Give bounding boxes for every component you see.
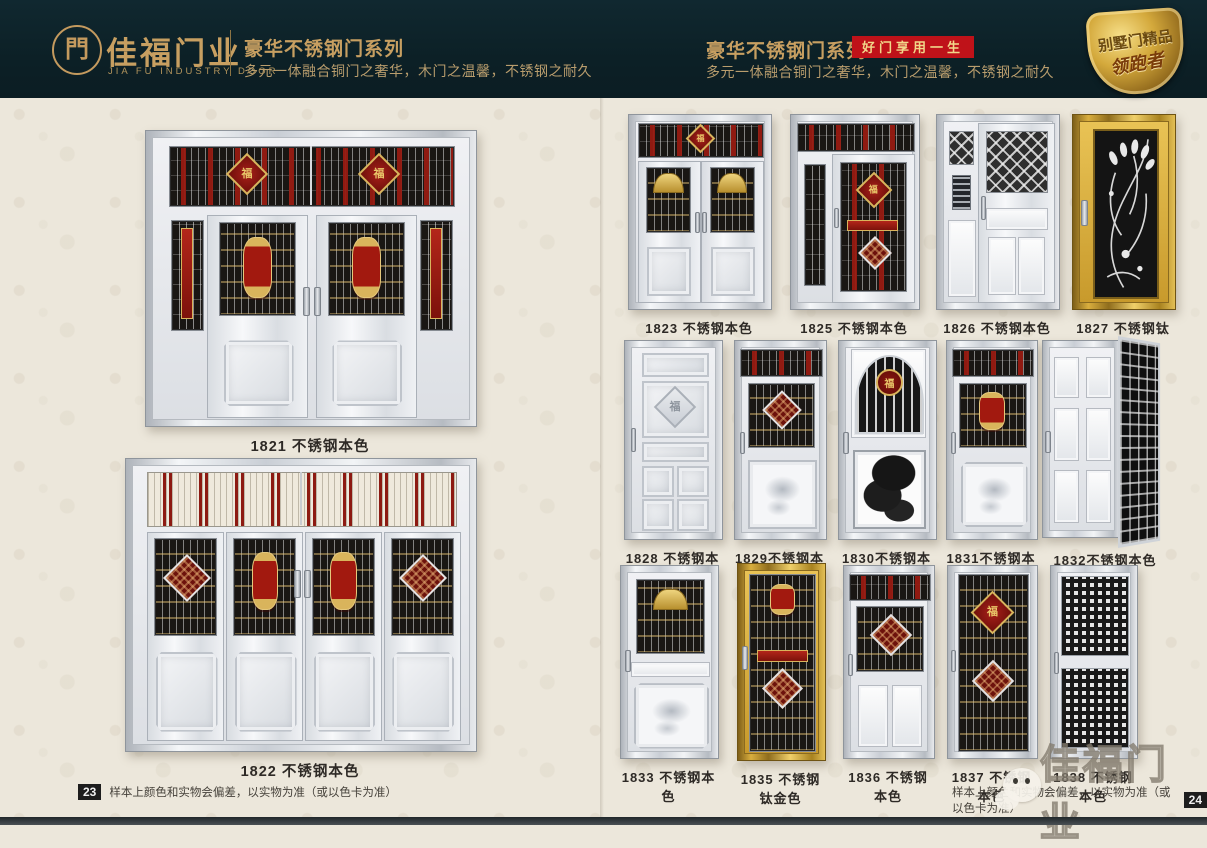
- page-crease: [600, 98, 604, 817]
- emboss-panel: [642, 353, 708, 377]
- door-handle: [314, 287, 321, 316]
- emboss-panel: [156, 652, 218, 732]
- door-1833-figure: 1833 不锈钢本色: [620, 565, 717, 805]
- door-handle: [1045, 431, 1051, 453]
- series-title-left: 豪华不锈钢门系列: [244, 34, 404, 61]
- ink-art-panel: [853, 450, 927, 529]
- page-number: 23: [78, 784, 101, 800]
- door-label: 1821 不锈钢本色: [145, 435, 475, 456]
- door-panel: [1086, 470, 1111, 523]
- door-1829-image: [734, 340, 827, 540]
- lantern-motif: [352, 237, 380, 298]
- lantern-motif: [979, 392, 1004, 430]
- door-handle: [625, 650, 630, 671]
- brand-watermark: 佳福门业: [995, 732, 1207, 848]
- lower-panel: [948, 220, 976, 298]
- lantern-motif: [330, 552, 357, 609]
- door-1828-image: 福: [624, 340, 723, 540]
- door-1829-figure: 1829不锈钢本色: [734, 340, 825, 586]
- door-handle: [740, 432, 745, 454]
- door-1825-figure: 福 1825 不锈钢本色: [790, 114, 918, 337]
- door-1831-image: [946, 340, 1038, 540]
- wechat-watermark-icon: [995, 768, 1040, 812]
- door-1836-figure: 1836 不锈钢本色: [843, 565, 933, 805]
- door-1830-figure: 福 1830不锈钢本色: [838, 340, 935, 586]
- door-1831-figure: 1831不锈钢本色: [946, 340, 1036, 586]
- door-handle: [1054, 652, 1059, 673]
- mid-band: [986, 208, 1048, 229]
- mid-band: [631, 662, 711, 677]
- award-shield-icon: 别墅门精品 领跑者: [1085, 7, 1187, 97]
- mesh-panel: [1061, 576, 1128, 657]
- door-handle: [742, 646, 748, 670]
- emboss-square: [642, 466, 673, 498]
- door-1837-image: 福: [947, 565, 1038, 759]
- door-panel: [1054, 408, 1079, 461]
- emboss-band: [642, 442, 708, 462]
- door-1821-image: 福 福: [145, 130, 477, 427]
- door-handle: [303, 287, 310, 316]
- door-1832-figure: 1832不锈钢本色: [1042, 336, 1168, 569]
- tassel-motif: [181, 228, 193, 319]
- door-1827-image: [1072, 114, 1176, 310]
- door-1835-figure: 1835 不锈钢钛金色: [737, 563, 824, 807]
- door-handle: [848, 654, 853, 675]
- lattice-window: [986, 131, 1048, 193]
- tassel-motif: [430, 228, 442, 319]
- watermark-text: 佳福门业: [1040, 732, 1207, 848]
- emboss-panel: [647, 247, 691, 296]
- door-handle: [702, 212, 707, 233]
- door-1832-image: [1042, 336, 1168, 542]
- door-1838-image: [1050, 565, 1138, 759]
- door-panel: [1086, 357, 1111, 398]
- side-window: [804, 164, 826, 286]
- door-panel: [1086, 408, 1111, 461]
- emboss-square: [677, 466, 708, 498]
- door-label: 1833 不锈钢本色: [620, 767, 717, 805]
- transom-grille: [740, 349, 822, 377]
- series-tagline-left: 多元一体融合铜门之奢华，木门之温馨，不锈钢之耐久: [244, 61, 592, 81]
- header-bar: 門 佳福门业 JIA FU INDUSTRY DOOR 豪华不锈钢门系列 多元一…: [0, 0, 1207, 98]
- door-1821-figure: 福 福 1821 不锈钢本色: [145, 130, 475, 456]
- lower-panel: [988, 237, 1016, 295]
- door-1827-figure: 1827 不锈钢钛金色: [1072, 114, 1174, 356]
- catalog-spread: 門 佳福门业 JIA FU INDUSTRY DOOR 豪华不锈钢门系列 多元一…: [0, 0, 1207, 825]
- door-1825-image: 福: [790, 114, 920, 310]
- door-handle: [695, 212, 700, 233]
- door-label: 1823 不锈钢本色: [628, 318, 770, 337]
- door-1826-figure: 1826 不锈钢本色: [936, 114, 1058, 337]
- peacock-scroll-art: [1095, 131, 1156, 298]
- door-handle: [951, 650, 956, 671]
- red-bar-motif: [757, 650, 808, 662]
- door-handle: [834, 208, 839, 227]
- door-handle: [631, 428, 636, 452]
- emboss-panel: [332, 340, 402, 406]
- door-1830-image: 福: [838, 340, 937, 540]
- door-label: 1826 不锈钢本色: [936, 318, 1058, 337]
- intercom-panel: [952, 175, 971, 210]
- transom-divider: [300, 472, 303, 525]
- door-handle: [981, 196, 986, 219]
- door-1828-figure: 福 1828 不锈钢本色: [624, 340, 721, 586]
- etched-art-panel: [748, 460, 818, 529]
- door-handle: [951, 432, 956, 454]
- lantern-motif: [770, 584, 795, 615]
- door-panel: [1054, 357, 1079, 398]
- door-1823-figure: 福 1823 不锈钢本色: [628, 114, 770, 337]
- door-handle: [304, 570, 311, 598]
- fu-medallion-motif: 福: [876, 369, 903, 396]
- series-tagline-right: 多元一体融合铜门之奢华，木门之温馨，不锈钢之耐久: [706, 62, 1054, 82]
- transom-grille: [952, 349, 1033, 377]
- transom-divider: [310, 146, 313, 205]
- door-label: 1825 不锈钢本色: [790, 318, 918, 337]
- emboss-panel: [711, 247, 755, 296]
- emboss-panel: [224, 340, 294, 406]
- emboss-square: [642, 499, 673, 531]
- door-1822-figure: 1822 不锈钢本色: [125, 458, 475, 781]
- emboss-square: [677, 499, 708, 531]
- red-bar-motif: [847, 220, 898, 232]
- transom-grille: [797, 123, 914, 152]
- emboss-art-panel: [634, 683, 710, 748]
- door-1836-image: [843, 565, 935, 759]
- lower-panel: [858, 685, 889, 747]
- left-page-footer: 23 样本上颜色和实物会偏差，以实物为准（或以色卡为准）: [78, 784, 397, 800]
- lower-panel: [1018, 237, 1046, 295]
- slogan-badge: 好门享用一生: [852, 36, 974, 58]
- emboss-panel: [314, 652, 376, 732]
- fan-motif: [653, 173, 683, 192]
- brand-logo-icon: 門: [52, 25, 102, 75]
- door-handle: [843, 432, 848, 454]
- door-1835-image: [737, 563, 826, 761]
- art-panel: [1093, 129, 1158, 300]
- door-label: 1836 不锈钢本色: [843, 767, 933, 805]
- page-bottom-edge: [0, 817, 1207, 825]
- door-1822-image: [125, 458, 477, 752]
- emboss-panel: [392, 652, 454, 732]
- door-1826-image: [936, 114, 1060, 310]
- lantern-motif: [243, 237, 271, 298]
- white-panel-door: [1042, 340, 1122, 538]
- transom-grille: [849, 574, 930, 601]
- small-lattice-window: [949, 131, 974, 166]
- door-handle: [294, 570, 301, 598]
- door-handle: [1081, 200, 1088, 225]
- door-1823-image: 福: [628, 114, 772, 310]
- lantern-motif: [252, 552, 279, 609]
- door-panel: [1054, 470, 1079, 523]
- door-label: 1822 不锈钢本色: [125, 760, 475, 781]
- door-1833-image: [620, 565, 719, 759]
- emboss-panel: [235, 652, 297, 732]
- series-title-right: 豪华不锈钢门系列: [706, 36, 866, 63]
- disclaimer-text: 样本上颜色和实物会偏差，以实物为准（或以色卡为准）: [109, 784, 397, 800]
- open-mesh-screen-door: [1118, 336, 1160, 548]
- header-divider: [230, 30, 231, 76]
- emboss-art-panel: [961, 462, 1028, 527]
- door-label: 1835 不锈钢钛金色: [737, 769, 824, 807]
- lower-panel: [892, 685, 923, 747]
